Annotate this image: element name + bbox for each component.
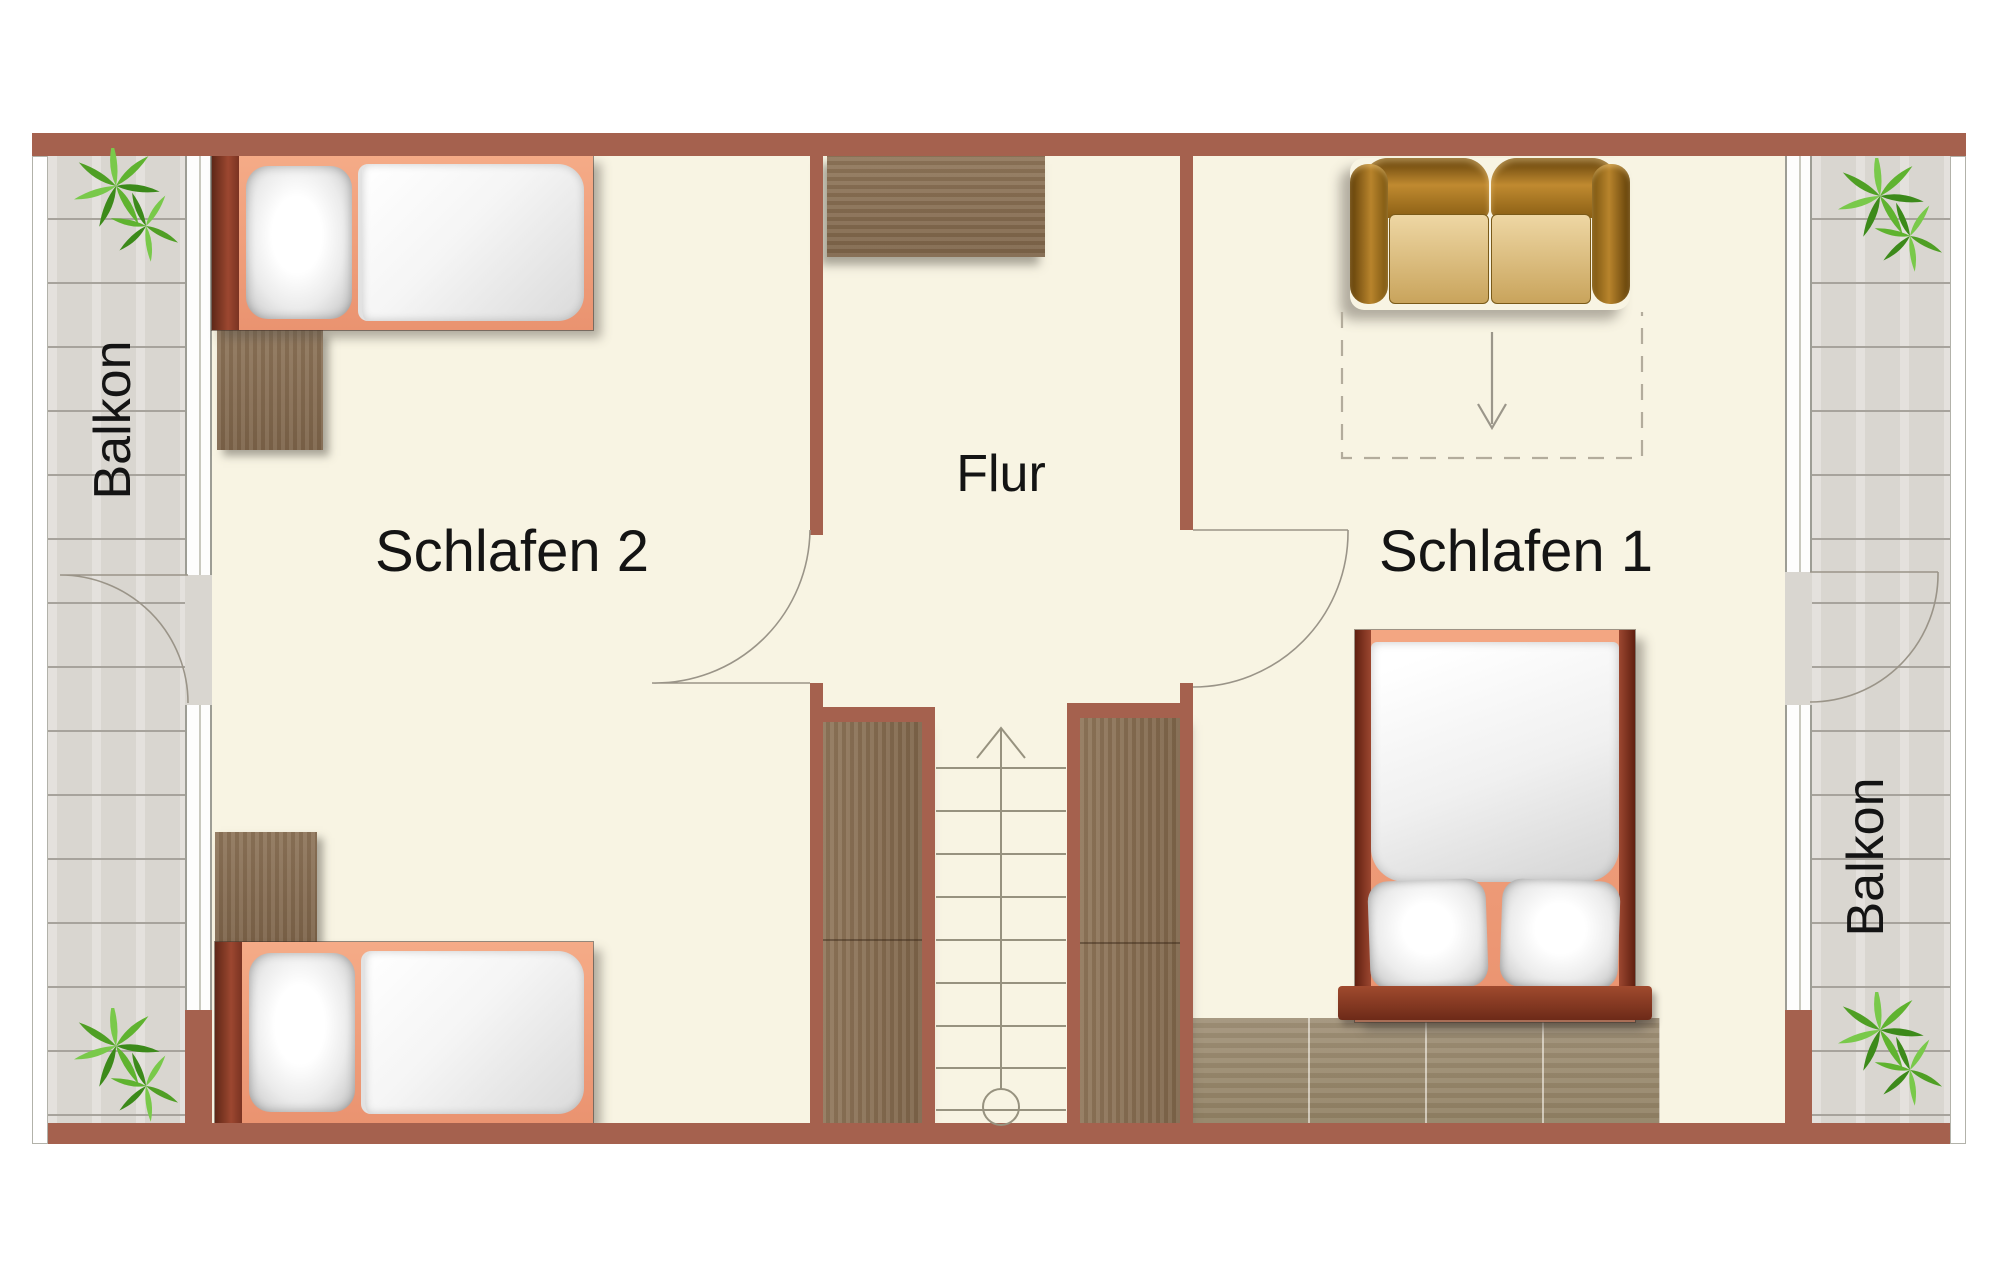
hall-wardrobe — [827, 156, 1045, 257]
nightstand-top — [217, 330, 323, 450]
hall-wall-right-lower — [1180, 683, 1193, 1123]
window-right-lower — [1785, 705, 1812, 1010]
sofa — [1350, 158, 1630, 310]
double-bed — [1355, 630, 1635, 1022]
exterior-wall-bottom — [32, 1123, 1966, 1144]
balcony-door-opening-left — [185, 575, 212, 705]
balcony-label-left: Balkon — [83, 270, 143, 570]
stairwell-wall-left — [922, 722, 935, 1123]
plant-icon — [1838, 158, 1956, 276]
bed-pillow — [246, 166, 352, 319]
single-bed-top — [212, 155, 593, 330]
bed-duvet — [361, 951, 584, 1114]
balcony-door-opening-right — [1785, 572, 1812, 705]
bed-headboard — [212, 155, 239, 330]
room-label-bedroom2: Schlafen 2 — [312, 516, 712, 588]
hall-wall-left-upper — [810, 156, 823, 535]
bed-pillow-right — [1499, 878, 1621, 990]
balcony-left-railing — [32, 156, 48, 1144]
bed-headboard — [215, 942, 242, 1123]
plant-icon — [74, 1008, 192, 1126]
balcony-label-right: Balkon — [1836, 707, 1896, 1007]
bed-rail-right — [1619, 630, 1635, 990]
hall-wall-left-stub — [823, 707, 935, 722]
window-wall-left — [185, 156, 212, 1123]
window-wall-right — [1785, 156, 1812, 1123]
room-label-bedroom1: Schlafen 1 — [1316, 516, 1716, 588]
floor-plan-canvas: Schlafen 2 Flur Schlafen 1 Balkon Balkon — [0, 0, 2000, 1266]
bed-pillow-left — [1367, 878, 1489, 990]
wall-segment-right-bottom — [1785, 1010, 1812, 1123]
wardrobe-right-of-stairs — [1080, 718, 1183, 1123]
nightstand-bottom — [215, 832, 317, 942]
stairwell-wall-right — [1067, 718, 1080, 1123]
wardrobe-seam — [822, 939, 922, 941]
sofa-armrest-right — [1592, 164, 1630, 304]
sofa-seat-cushion — [1389, 214, 1489, 304]
hall-wall-left-lower — [810, 683, 823, 1123]
exterior-wall-top — [32, 133, 1966, 156]
bed-pillow — [249, 953, 355, 1112]
plant-icon — [74, 148, 192, 266]
hall-wall-right-upper — [1180, 156, 1193, 530]
bed-footboard — [1338, 986, 1652, 1020]
wardrobe-left-of-stairs — [822, 722, 922, 1123]
plant-icon — [1838, 992, 1956, 1110]
sofa-armrest-left — [1350, 164, 1388, 304]
sofa-seat-cushion — [1491, 214, 1591, 304]
sideboard-bedroom1 — [1193, 1018, 1660, 1123]
room-label-hallway: Flur — [901, 440, 1101, 508]
single-bed-bottom — [215, 942, 593, 1123]
wardrobe-seam — [1080, 942, 1183, 944]
window-right-upper — [1785, 156, 1812, 572]
bed-duvet — [358, 164, 584, 321]
hall-wall-right-stub — [1067, 703, 1193, 718]
bed-duvet — [1371, 642, 1619, 882]
window-left-lower — [185, 705, 212, 1010]
